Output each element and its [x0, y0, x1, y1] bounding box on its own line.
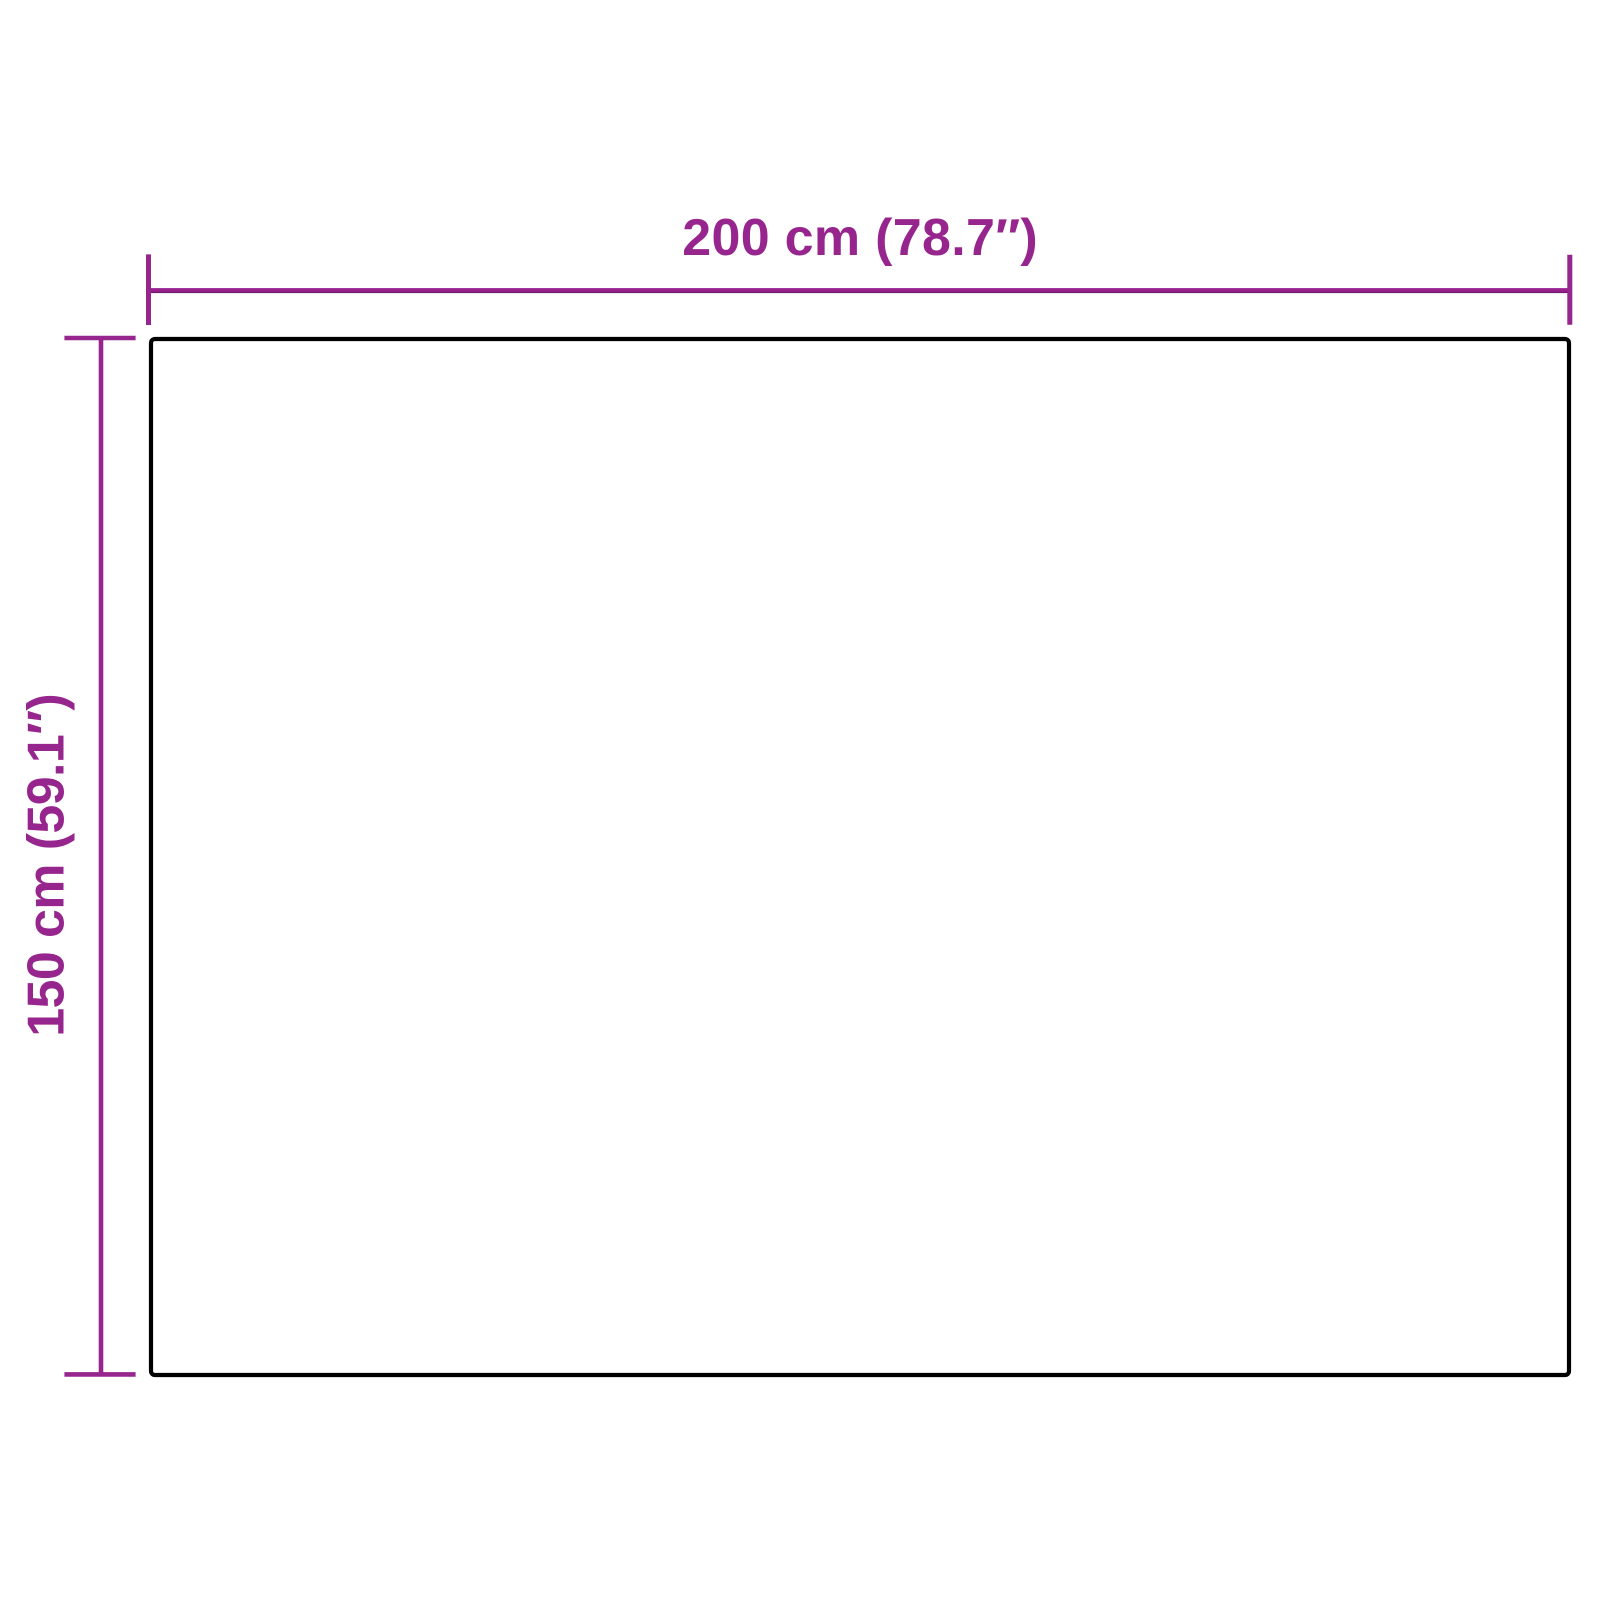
svg-text:200 cm (78.7″): 200 cm (78.7″) [682, 209, 1038, 267]
svg-text:150 cm (59.1″): 150 cm (59.1″) [18, 693, 76, 1037]
